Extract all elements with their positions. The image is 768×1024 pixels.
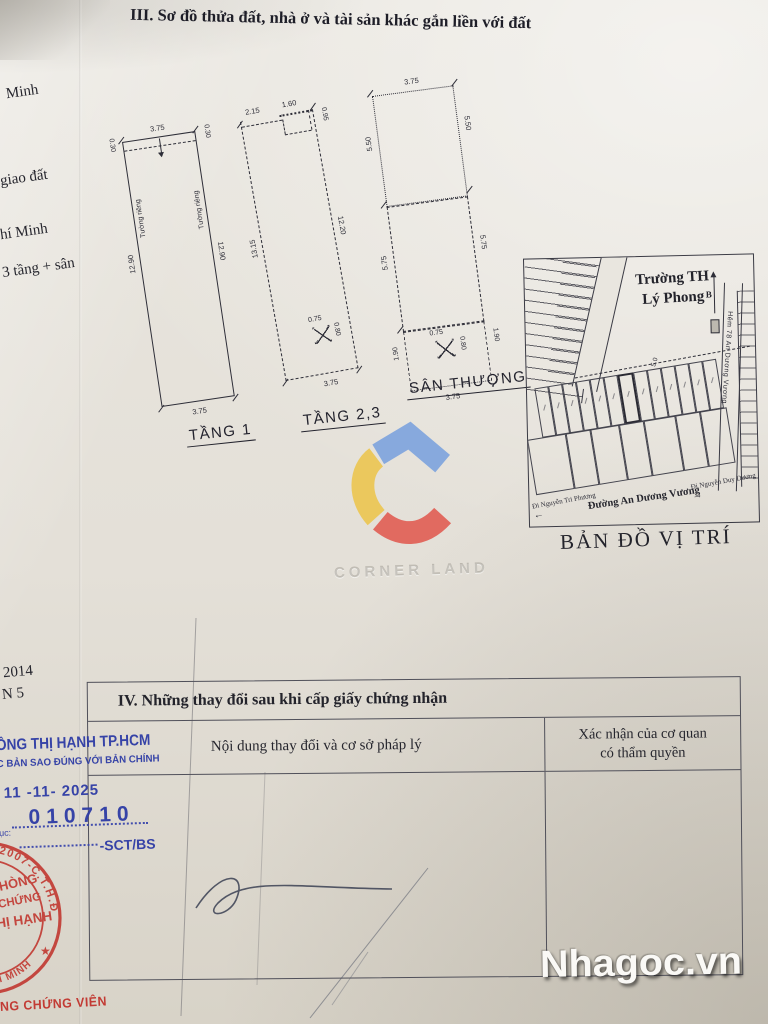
map-street-label: Đường An Dương Vương (587, 485, 700, 512)
blue-stamp-name: ỒNG THỊ HẠNH TP.HCM (0, 732, 151, 755)
santhuong-dim-upperright: 5.50 (463, 115, 472, 130)
tang23-notch-right (308, 110, 312, 130)
tang23-dim-bottom: 3.75 (323, 377, 339, 387)
dim-tick (282, 379, 288, 387)
stairs-arrow-icon: ↙ (314, 339, 320, 346)
tang1-dim-right: 12.90 (216, 241, 226, 261)
map-dir-right-label: Đi Nguyễn Duy Dương → (690, 471, 758, 502)
floorplan-tang1: 3.75 0.30 0.30 Tường riêng 12.90 Tường r… (122, 131, 235, 407)
confirm-line1: Xác nhận của cơ quan (578, 724, 707, 744)
location-map: Trường TH Lý Phong B 5.0 Hẻm 78 An Dương… (523, 253, 760, 527)
section4-title-row: IV. Những thay đổi sau khi cấp giấy chứn… (88, 677, 740, 722)
santhuong-mid-section (387, 196, 485, 332)
logo-red-segment (380, 516, 442, 533)
stairs-arrow-icon: ↖ (435, 340, 441, 347)
tang23-notch-left (282, 119, 286, 134)
santhuong-upper-section (372, 85, 468, 207)
tang1-dim-top: 3.75 (121, 119, 193, 137)
dim-tick (232, 394, 238, 402)
section3-title: III. Sơ đồ thửa đất, nhà ở và tài sản kh… (130, 5, 532, 33)
map-caption: BẢN ĐỒ VỊ TRÍ (560, 524, 732, 555)
tang1-left-wall-label: Tường riêng (135, 199, 148, 238)
map-lot-width-label: 5.0 (650, 357, 659, 368)
stairs-arrow-icon: ↗ (325, 324, 331, 331)
dim-tick (118, 137, 124, 145)
dim-tick (356, 365, 362, 373)
section4-table: IV. Những thay đổi sau khi cấp giấy chứn… (87, 676, 744, 981)
stairs-arrow-icon: ↙ (436, 354, 442, 361)
seal-arc-bottom-text: T.P HỒ CHÍ MINH (0, 959, 34, 988)
photographed-land-certificate: { "photo": { "site_watermark": "Nhagoc.v… (0, 0, 768, 1024)
red-notary-seal: 02007-C.T.H.Đ ★ T.P HỒ CHÍ MINH HÒNG CHỨ… (0, 831, 70, 1001)
map-houses-right (737, 290, 760, 486)
seal-line2: CHỨNG (0, 890, 42, 911)
section4-header-row: Nội dung thay đổi và cơ sở pháp lý Xác n… (88, 716, 740, 776)
margin-fragment-n5: N 5 (1, 685, 24, 704)
margin-fragment-hi-minh: hí Minh (0, 221, 49, 245)
right-arrow-icon: → (691, 489, 703, 502)
left-arrow-icon: ← (533, 509, 545, 522)
floorplan-santhuong: 3.75 5.50 5.50 5.75 5.75 1.90 1.90 ↖ ↗ ↙… (372, 85, 492, 391)
tang23-dim-right: 12.20 (336, 215, 347, 235)
margin-fragment-minh: Minh (5, 82, 40, 103)
tang1-dim-topright: 0.30 (202, 124, 211, 139)
tang23-dim-righttop: 0.95 (320, 107, 329, 122)
santhuong-dim-midleft: 5.75 (380, 255, 389, 270)
tang1-dim-bottom: 3.75 (163, 402, 235, 420)
dim-tick (466, 186, 472, 194)
section4-col-confirm-header: Xác nhận của cơ quan có thẩm quyền (545, 716, 740, 771)
tang23-dim-left: 13.15 (249, 239, 260, 259)
santhuong-dim-midright: 5.75 (479, 234, 488, 249)
margin-fragment-2014: 2014 (2, 663, 33, 683)
map-building-symbol (710, 319, 719, 333)
santhuong-stairs-icon: ↖ ↗ ↙ ↘ (436, 339, 456, 359)
tang1-dim-topleft: 0.30 (107, 138, 116, 153)
dim-tick (310, 103, 316, 111)
stairs-arrow-icon: ↖ (311, 327, 317, 334)
tang23-dim-topleft: 2.15 (245, 106, 261, 116)
north-arrowhead-icon (710, 268, 716, 277)
tang1-label: TẦNG 1 (185, 420, 256, 447)
map-north-label: B (706, 289, 712, 299)
tang23-stairs-icon: ↖ ↗ ↙ ↘ (313, 326, 333, 346)
santhuong-dim-upperleft: 5.50 (364, 136, 373, 151)
site-watermark: Nhagoc.vn (540, 940, 743, 987)
section4-body-divider (544, 772, 547, 973)
tang1-right-wall-label: Tường riêng (193, 190, 206, 229)
corner-land-logo (345, 420, 480, 555)
tang23-dim-topright: 1.60 (281, 99, 297, 109)
stairs-arrow-icon: ↘ (327, 337, 333, 344)
margin-fragment-3-tang-san: 3 tầng + sân (1, 255, 76, 282)
confirm-line2: có thẩm quyền (600, 743, 686, 763)
floorplan-tang23: 2.15 1.60 0.95 13.15 12.20 3.75 ↖ ↗ ↙ ↘ … (240, 109, 359, 381)
tang1-dim-left: 12.90 (127, 254, 137, 274)
blue-stamp-code: -SCT/BS (99, 836, 156, 854)
dim-tick (451, 79, 457, 87)
seal-star-icon: ★ (40, 944, 51, 958)
santhuong-dim-lowerleft: 1.90 (392, 347, 401, 361)
tang23-dim-stairw: 0.75 (308, 315, 323, 324)
logo-yellow-segment (363, 457, 376, 517)
corner-land-wordmark: CORNER LAND (334, 559, 489, 581)
section4-title: IV. Những thay đổi sau khi cấp giấy chứn… (118, 690, 447, 711)
stairs-arrow-icon: ↘ (451, 352, 457, 359)
paper-fold-topleft (0, 0, 110, 60)
margin-fragment-giao-dat: giao đất (0, 167, 49, 191)
tang1-entry-arrow-icon (159, 138, 163, 156)
santhuong-dim-lowerright: 1.90 (491, 327, 500, 341)
blue-stamp-certify-line: C BẢN SAO ĐÚNG VỚI BẢN CHÍNH (0, 753, 160, 770)
tang23-notch-bottom (285, 130, 311, 136)
logo-blue-segment (378, 436, 442, 464)
tang23-top-edge (242, 120, 283, 128)
tang23-dim-stairh: 0.80 (332, 322, 341, 337)
seal-line1: HÒNG (0, 871, 39, 894)
stairs-arrow-icon: ↗ (449, 338, 455, 345)
seal-line3: HỊ HẠNH (0, 908, 53, 931)
blue-stamp-date: 11 -11- 2025 (3, 782, 99, 802)
